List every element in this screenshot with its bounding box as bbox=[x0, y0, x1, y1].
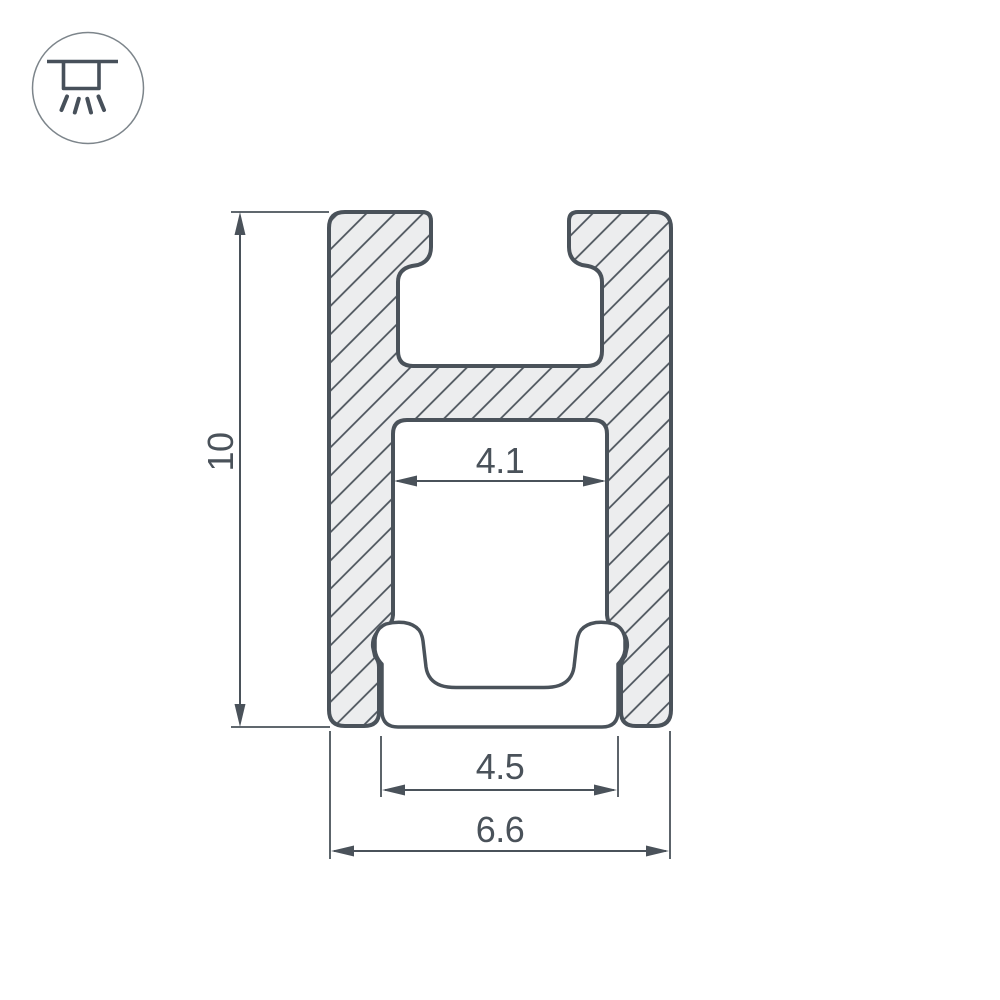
dimensions: 10 4.1 4.5 bbox=[200, 212, 670, 859]
dimension-label-overall-width: 6.6 bbox=[476, 809, 525, 850]
arrowhead-right-icon bbox=[646, 846, 669, 857]
recessed-fixture-box bbox=[64, 62, 100, 89]
mount-type-badge bbox=[33, 33, 144, 144]
dimension-cover-width: 4.5 bbox=[381, 736, 618, 797]
drawing-svg: 10 4.1 4.5 bbox=[0, 0, 1000, 1000]
arrowhead-down-icon bbox=[235, 704, 246, 727]
arrowhead-left-icon bbox=[331, 846, 354, 857]
light-ray bbox=[99, 97, 105, 111]
light-ray bbox=[87, 99, 91, 113]
arrowhead-up-icon bbox=[235, 212, 246, 235]
arrowhead-left-icon bbox=[394, 476, 417, 487]
dimension-label-slot-width: 4.1 bbox=[476, 440, 525, 481]
dimension-slot-width: 4.1 bbox=[394, 440, 606, 487]
light-ray bbox=[75, 99, 79, 113]
arrowhead-right-icon bbox=[594, 785, 617, 796]
light-ray bbox=[62, 97, 68, 111]
recessed-ceiling-light-icon bbox=[47, 62, 118, 113]
dimension-height: 10 bbox=[200, 212, 330, 727]
technical-drawing-page: 10 4.1 4.5 bbox=[0, 0, 1000, 1000]
arrowhead-right-icon bbox=[583, 476, 606, 487]
dimension-label-height: 10 bbox=[200, 432, 241, 471]
light-rays bbox=[62, 97, 105, 113]
dimension-label-cover-width: 4.5 bbox=[476, 746, 525, 787]
arrowhead-left-icon bbox=[382, 785, 405, 796]
diffuser-cover bbox=[375, 622, 625, 727]
